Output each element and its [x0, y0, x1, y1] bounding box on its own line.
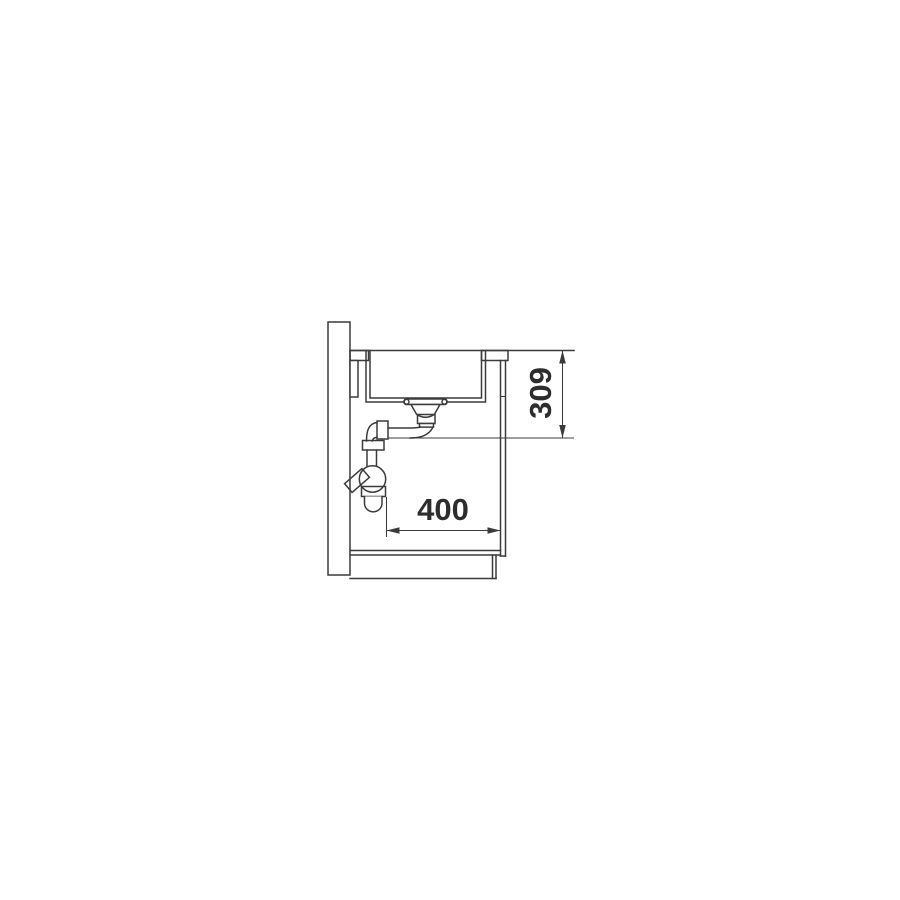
trap-cup	[365, 497, 383, 512]
sink-section-diagram: 400 309	[0, 0, 900, 900]
dimension-label-400: 400	[417, 492, 469, 527]
technical-drawing-canvas: 400 309	[0, 0, 900, 900]
wall-support-batten	[350, 361, 358, 398]
background	[0, 0, 900, 900]
dimension-label-309: 309	[523, 367, 558, 419]
